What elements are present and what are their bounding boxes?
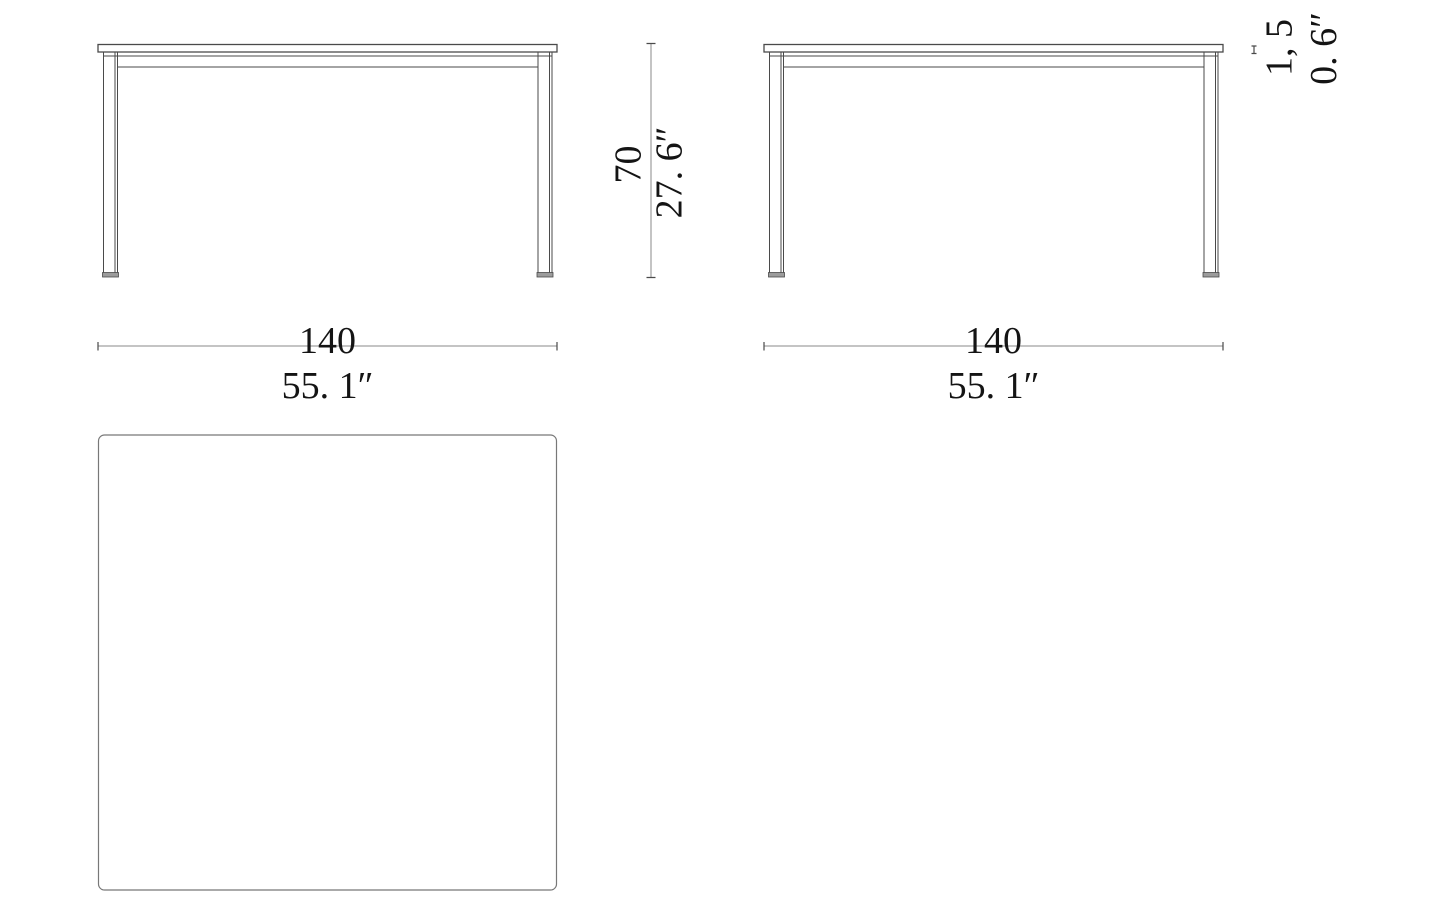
- tabletop-plan-outline: [99, 435, 557, 890]
- side-depth-dimension: 140 55. 1″: [764, 320, 1223, 407]
- front-width-value-cm: 140: [299, 320, 356, 362]
- height-value-inch: 27. 6″: [649, 127, 691, 219]
- thickness-dimension-tick: [1252, 46, 1257, 54]
- side-view: [764, 45, 1223, 278]
- side-view-table-drawing: [764, 45, 1223, 278]
- front-view-table-drawing: [98, 45, 557, 278]
- side-depth-value-cm: 140: [965, 320, 1022, 362]
- front-width-value-inch: 55. 1″: [282, 365, 374, 407]
- height-dimension: 70 27. 6″: [608, 44, 691, 278]
- technical-drawing-canvas: 70 27. 6″ 1, 5 0. 6″ 140 55. 1″ 140 55. …: [0, 0, 1445, 903]
- side-depth-value-inch: 55. 1″: [948, 365, 1040, 407]
- thickness-dimension: 1, 5 0. 6″: [1252, 12, 1346, 85]
- front-width-dimension: 140 55. 1″: [98, 320, 557, 407]
- height-value-cm: 70: [608, 146, 650, 184]
- top-view: [99, 435, 557, 890]
- front-view: [98, 45, 557, 278]
- thickness-value-inch: 0. 6″: [1303, 12, 1345, 85]
- thickness-value-cm: 1, 5: [1259, 19, 1301, 76]
